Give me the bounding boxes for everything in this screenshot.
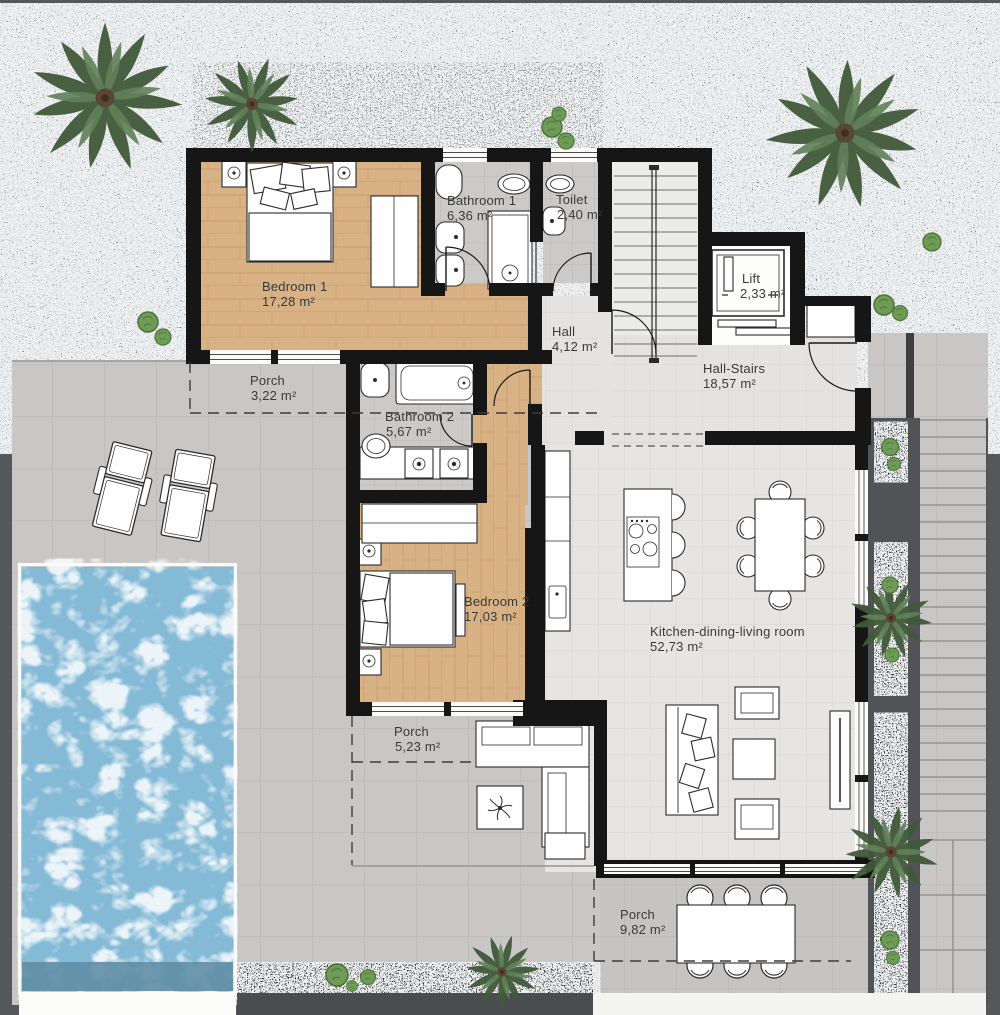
room-label-bathroom2: Bathroom 2: [385, 409, 454, 424]
window: [210, 350, 340, 364]
room-label-porch-north: Porch: [250, 373, 285, 388]
room-label-porch-west: Porch: [394, 724, 429, 739]
bush-icon: [874, 295, 894, 315]
room-label-toilet: Toilet: [556, 192, 588, 207]
room-area-toilet: 2,40 m²: [557, 207, 603, 222]
room-area-hall: 4,12 m²: [552, 339, 598, 354]
bush-icon: [882, 577, 898, 593]
bush-icon: [155, 329, 171, 345]
room-label-bedroom1: Bedroom 1: [262, 279, 327, 294]
window: [551, 148, 597, 162]
bush-icon: [347, 981, 358, 992]
sliding-glass-door: [596, 860, 875, 878]
room-area-porch-west: 5,23 m²: [395, 739, 441, 754]
wardrobe-bedroom1: [371, 196, 418, 287]
room-area-lift: 2,33 m²: [740, 286, 786, 301]
room-area-porch-south: 9,82 m²: [620, 922, 666, 937]
bush-icon: [923, 233, 941, 251]
kitchen-counter: [545, 451, 570, 631]
corridor-floor: [421, 296, 528, 356]
floor-plan-image: Bedroom 1 17,28 m² Bathroom 1 6,36 m² To…: [0, 0, 1000, 1015]
bush-icon: [138, 312, 158, 332]
bush-icon: [882, 439, 899, 456]
swimming-pool: [19, 565, 236, 1015]
bush-icon: [888, 458, 901, 471]
room-label-kitchen: Kitchen-dining-living room: [650, 624, 805, 639]
bush-icon: [885, 648, 899, 662]
room-label-lift: Lift: [742, 271, 760, 286]
window: [855, 470, 868, 606]
coffee-table: [733, 739, 775, 779]
bush-icon: [893, 306, 908, 321]
window: [443, 148, 487, 162]
room-area-kitchen: 52,73 m²: [650, 639, 703, 654]
room-label-porch-south: Porch: [620, 907, 655, 922]
room-area-bedroom2: 17,03 m²: [464, 609, 517, 624]
cupboard: [807, 303, 855, 337]
outdoor-dining-set: [677, 885, 795, 978]
bush-icon: [552, 107, 566, 121]
bush-icon: [881, 931, 899, 949]
window: [372, 702, 523, 716]
side-table: [477, 786, 523, 829]
wardrobe-bedroom2: [362, 504, 477, 543]
room-label-bedroom2: Bedroom 2: [464, 594, 529, 609]
room-area-hallstairs: 18,57 m²: [703, 376, 756, 391]
armchair: [735, 799, 779, 839]
room-hall-floor: [542, 296, 612, 447]
room-area-bathroom2: 5,67 m²: [386, 424, 432, 439]
kitchen-island: [624, 489, 685, 601]
tv-unit: [830, 711, 850, 809]
room-label-bathroom1: Bathroom 1: [447, 193, 516, 208]
armchair: [735, 687, 779, 719]
room-area-bedroom1: 17,28 m²: [262, 294, 315, 309]
room-label-hallstairs: Hall-Stairs: [703, 361, 765, 376]
bush-icon: [326, 964, 348, 986]
sofa: [666, 705, 718, 815]
bush-icon: [361, 970, 376, 985]
bush-icon: [887, 952, 900, 965]
room-label-hall: Hall: [552, 324, 575, 339]
floor-plan-svg: Bedroom 1 17,28 m² Bathroom 1 6,36 m² To…: [0, 0, 1000, 1015]
bush-icon: [558, 133, 574, 149]
room-area-bathroom1: 6,36 m²: [447, 208, 493, 223]
room-area-porch-north: 3,22 m²: [251, 388, 297, 403]
